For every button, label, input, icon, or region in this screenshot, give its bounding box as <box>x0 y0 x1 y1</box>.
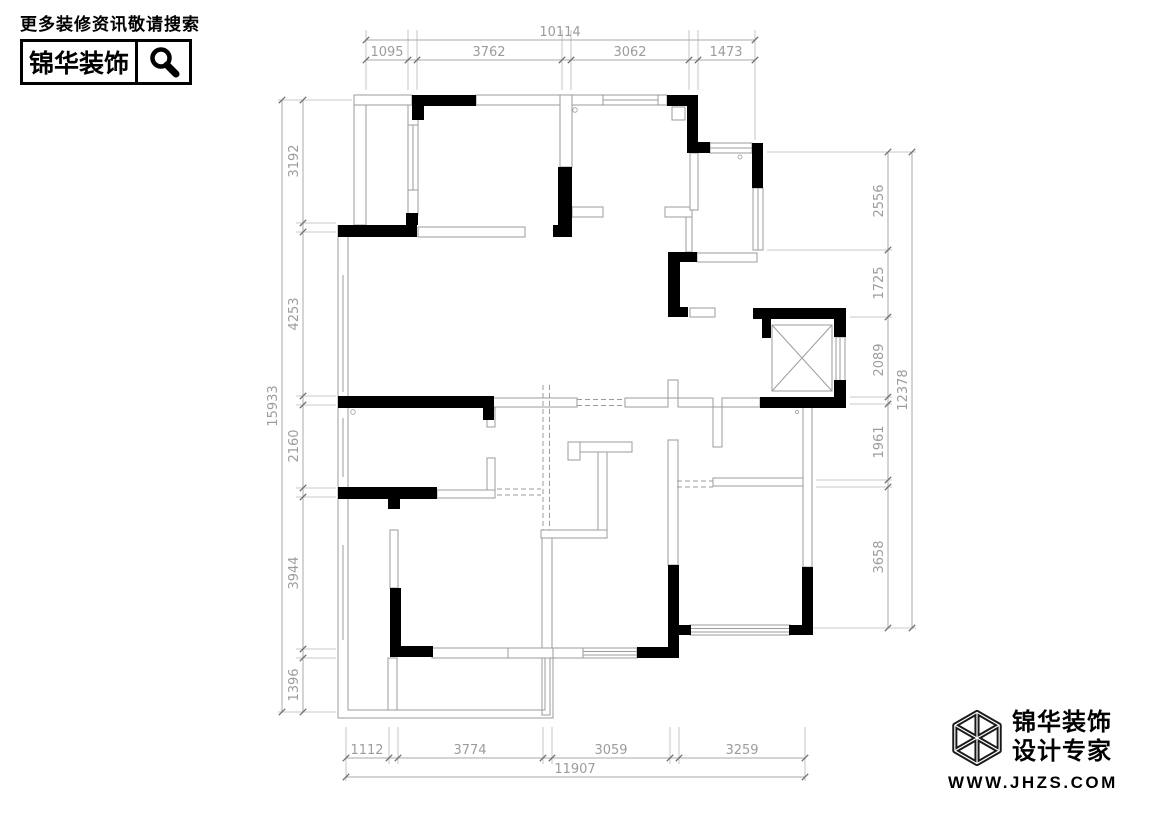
windows <box>343 95 845 658</box>
dim-bottom-3: 3059 <box>594 743 627 758</box>
cube-wireframe-icon <box>948 706 1006 770</box>
elevator-shaft <box>772 325 832 391</box>
page: { "header": { "tagline": "更多装修资讯敬请搜索", "… <box>0 0 1158 818</box>
dim-bottom-2: 3774 <box>453 743 486 758</box>
dimension-ticks <box>279 37 915 780</box>
dim-top-2: 3762 <box>472 45 505 60</box>
dim-left-total: 15933 <box>266 385 281 426</box>
footer-website: WWW.JHZS.COM <box>948 773 1140 793</box>
dimension-lines <box>282 40 912 777</box>
dim-right-3: 2089 <box>872 343 887 376</box>
floor-plan-svg: 10114 1095 3762 3062 1473 15933 3192 425… <box>0 0 1158 818</box>
dim-bottom-4: 3259 <box>725 743 758 758</box>
dim-right-4: 1961 <box>872 425 887 458</box>
dim-top-3: 3062 <box>613 45 646 60</box>
footer-brand-block: 锦华装饰 设计专家 WWW.JHZS.COM <box>948 706 1140 793</box>
dim-right-total: 12378 <box>896 369 911 410</box>
dim-top-total: 10114 <box>539 25 580 40</box>
dim-bottom-1: 1112 <box>350 743 383 758</box>
dim-left-4: 3944 <box>287 556 302 589</box>
dim-right-5: 3658 <box>872 540 887 573</box>
dim-left-2: 4253 <box>287 297 302 330</box>
footer-brand: 锦华装饰 <box>1012 708 1112 737</box>
dim-left-1: 3192 <box>287 144 302 177</box>
dim-left-5: 1396 <box>287 668 302 701</box>
dim-left-3: 2160 <box>287 429 302 462</box>
dim-right-1: 2556 <box>872 184 887 217</box>
dim-top-1: 1095 <box>370 45 403 60</box>
dim-top-4: 1473 <box>709 45 742 60</box>
footer-subtitle: 设计专家 <box>1012 737 1112 766</box>
dim-right-2: 1725 <box>872 266 887 299</box>
dim-bottom-total: 11907 <box>554 762 595 777</box>
